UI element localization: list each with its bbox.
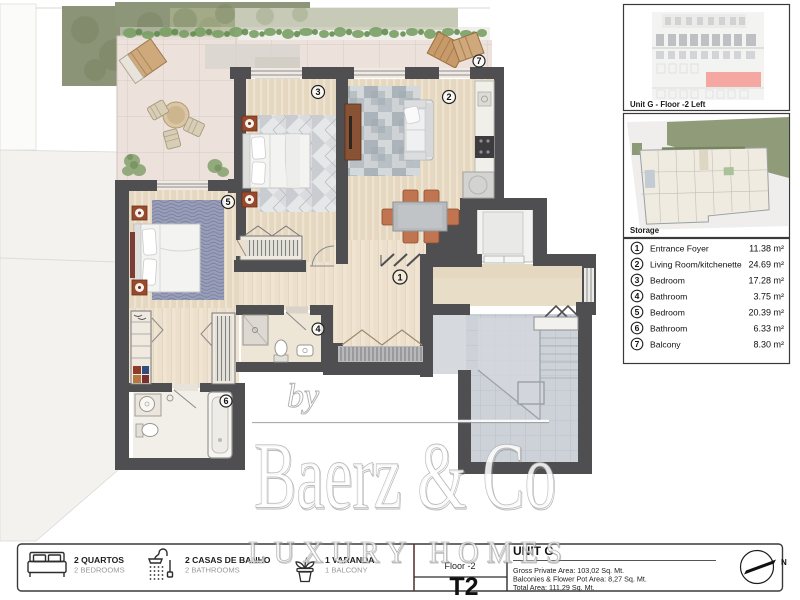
svg-text:3: 3 <box>635 275 640 285</box>
svg-text:17.28 m²: 17.28 m² <box>748 276 784 286</box>
svg-text:2 BATHROOMS: 2 BATHROOMS <box>185 566 240 575</box>
svg-text:6.33 m²: 6.33 m² <box>753 324 784 334</box>
svg-text:11.38 m²: 11.38 m² <box>749 244 784 254</box>
svg-text:LUXURY HOMES: LUXURY HOMES <box>248 534 570 569</box>
svg-text:Entrance Foyer: Entrance Foyer <box>650 244 709 254</box>
svg-text:6: 6 <box>635 323 640 333</box>
svg-text:1: 1 <box>397 273 403 284</box>
svg-text:7: 7 <box>635 339 640 349</box>
svg-text:2 BEDROOMS: 2 BEDROOMS <box>74 566 125 575</box>
svg-text:Living Room/kitchenette: Living Room/kitchenette <box>650 260 742 270</box>
svg-text:20.39 m²: 20.39 m² <box>748 308 784 318</box>
svg-text:Bedroom: Bedroom <box>650 308 685 318</box>
svg-text:3.75 m²: 3.75 m² <box>753 292 784 302</box>
svg-text:24.69 m²: 24.69 m² <box>748 260 784 270</box>
svg-text:6: 6 <box>223 396 228 406</box>
svg-text:1: 1 <box>635 243 640 253</box>
svg-text:5: 5 <box>225 197 230 207</box>
svg-text:2 QUARTOS: 2 QUARTOS <box>74 555 124 565</box>
svg-text:2: 2 <box>446 92 451 102</box>
svg-text:Bathroom: Bathroom <box>650 292 687 302</box>
svg-text:by: by <box>287 378 320 415</box>
svg-text:Bedroom: Bedroom <box>650 276 685 286</box>
svg-text:8.30 m²: 8.30 m² <box>753 340 784 350</box>
svg-text:Total Area: 111,29 Sq. Mt.: Total Area: 111,29 Sq. Mt. <box>513 583 595 592</box>
svg-text:4: 4 <box>635 291 640 301</box>
svg-text:5: 5 <box>635 307 640 317</box>
svg-text:T2: T2 <box>449 573 478 600</box>
svg-text:Unit G - Floor -2 Left: Unit G - Floor -2 Left <box>630 100 706 109</box>
svg-text:Storage: Storage <box>630 226 660 235</box>
svg-text:7: 7 <box>476 56 481 66</box>
svg-text:Baerz & Co: Baerz & Co <box>254 423 556 529</box>
svg-text:3: 3 <box>315 87 320 97</box>
svg-text:N: N <box>781 558 787 567</box>
svg-text:Bathroom: Bathroom <box>650 324 687 334</box>
svg-text:2: 2 <box>635 259 640 269</box>
svg-text:Balcony: Balcony <box>650 340 681 350</box>
svg-text:4: 4 <box>315 324 320 334</box>
